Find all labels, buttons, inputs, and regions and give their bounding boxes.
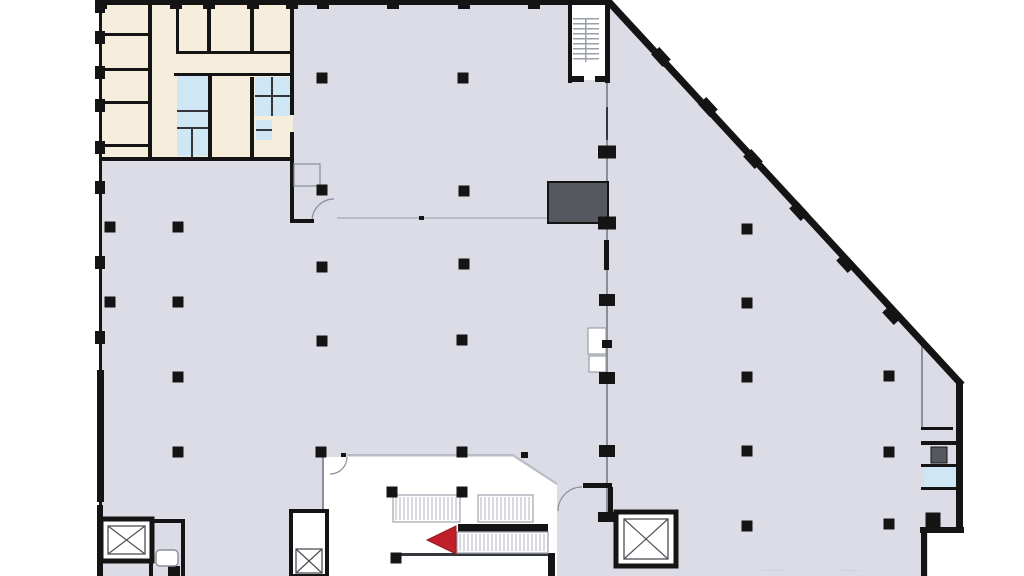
column [317, 262, 328, 273]
wall [458, 524, 548, 532]
wc-fixture [156, 550, 178, 566]
wall [208, 75, 212, 158]
column [457, 447, 468, 458]
wall [97, 370, 104, 502]
right-partition [921, 345, 923, 429]
column [602, 340, 612, 348]
wall-pier [95, 66, 105, 79]
stall-line [271, 77, 273, 116]
column [173, 297, 184, 308]
column [387, 487, 398, 498]
column [316, 447, 327, 458]
right-fixture [931, 447, 947, 463]
wall-pier [95, 141, 105, 154]
column [598, 512, 616, 522]
escalator-band [393, 495, 460, 522]
column [742, 298, 753, 309]
column [317, 73, 328, 84]
wall [176, 51, 293, 54]
wall-pier [95, 181, 105, 194]
wall [595, 76, 610, 82]
wall-pier [286, 0, 298, 9]
void-top-line [347, 454, 513, 456]
wall-pier [247, 0, 259, 9]
wall [605, 0, 610, 83]
wall [103, 33, 149, 36]
wall [604, 240, 609, 270]
wall [568, 76, 584, 82]
escalator-band [457, 532, 548, 553]
column [599, 294, 615, 306]
floor-plan-canvas: ·················· [0, 0, 1024, 576]
column [457, 487, 468, 498]
stall-line [191, 127, 193, 157]
wall-pier [387, 0, 399, 9]
column [742, 521, 753, 532]
column [884, 371, 895, 382]
stall-line [256, 129, 272, 131]
stair-room [568, 2, 608, 80]
column [459, 186, 470, 197]
column [105, 222, 116, 233]
wall [181, 519, 185, 576]
column [173, 222, 184, 233]
wall-pier [170, 0, 182, 9]
wall [290, 219, 314, 223]
wall-pier [95, 99, 105, 112]
wall-pier [95, 31, 105, 44]
wall [568, 0, 572, 83]
wall [103, 68, 149, 71]
spine-dash [606, 107, 608, 140]
column [391, 553, 402, 564]
wall-pier [95, 0, 105, 13]
column [458, 73, 469, 84]
wall [956, 383, 963, 530]
column [884, 447, 895, 458]
column [598, 217, 616, 230]
wall-pier [203, 0, 215, 9]
column [105, 297, 116, 308]
dimension-text-1: ········· [762, 568, 785, 574]
wall [103, 101, 149, 104]
stair-rail [585, 18, 587, 62]
column [742, 372, 753, 383]
column [742, 224, 753, 235]
wall-pier [95, 331, 105, 344]
right-room-blue [924, 467, 958, 488]
wall [921, 530, 927, 576]
glass-partition [337, 217, 548, 219]
door-stop [419, 216, 424, 220]
column [459, 259, 470, 270]
column [742, 446, 753, 457]
column [884, 519, 895, 530]
wall [583, 483, 612, 488]
wall [250, 77, 254, 157]
column [926, 513, 941, 528]
stall-line [177, 110, 208, 112]
wall [548, 553, 555, 576]
wall-pier [317, 0, 329, 9]
wall [174, 73, 293, 76]
column [457, 335, 468, 346]
wall [290, 0, 294, 115]
spine-notch [589, 356, 606, 372]
column [599, 445, 615, 457]
floor-plan: ·················· [0, 0, 1024, 576]
column [173, 447, 184, 458]
wall [168, 566, 180, 576]
column [317, 336, 328, 347]
column [317, 185, 328, 196]
small-column [521, 452, 528, 458]
wall-pier [458, 0, 470, 9]
column [599, 372, 615, 384]
wall-pier [95, 256, 105, 269]
dimension-text-2: ········· [837, 568, 860, 574]
wall [103, 144, 149, 147]
wall-pier [528, 0, 540, 9]
column [598, 146, 616, 159]
wall [101, 157, 294, 161]
wall [148, 0, 152, 158]
wall [921, 427, 953, 430]
column [173, 372, 184, 383]
door-stop [341, 453, 346, 457]
wall [290, 153, 294, 223]
